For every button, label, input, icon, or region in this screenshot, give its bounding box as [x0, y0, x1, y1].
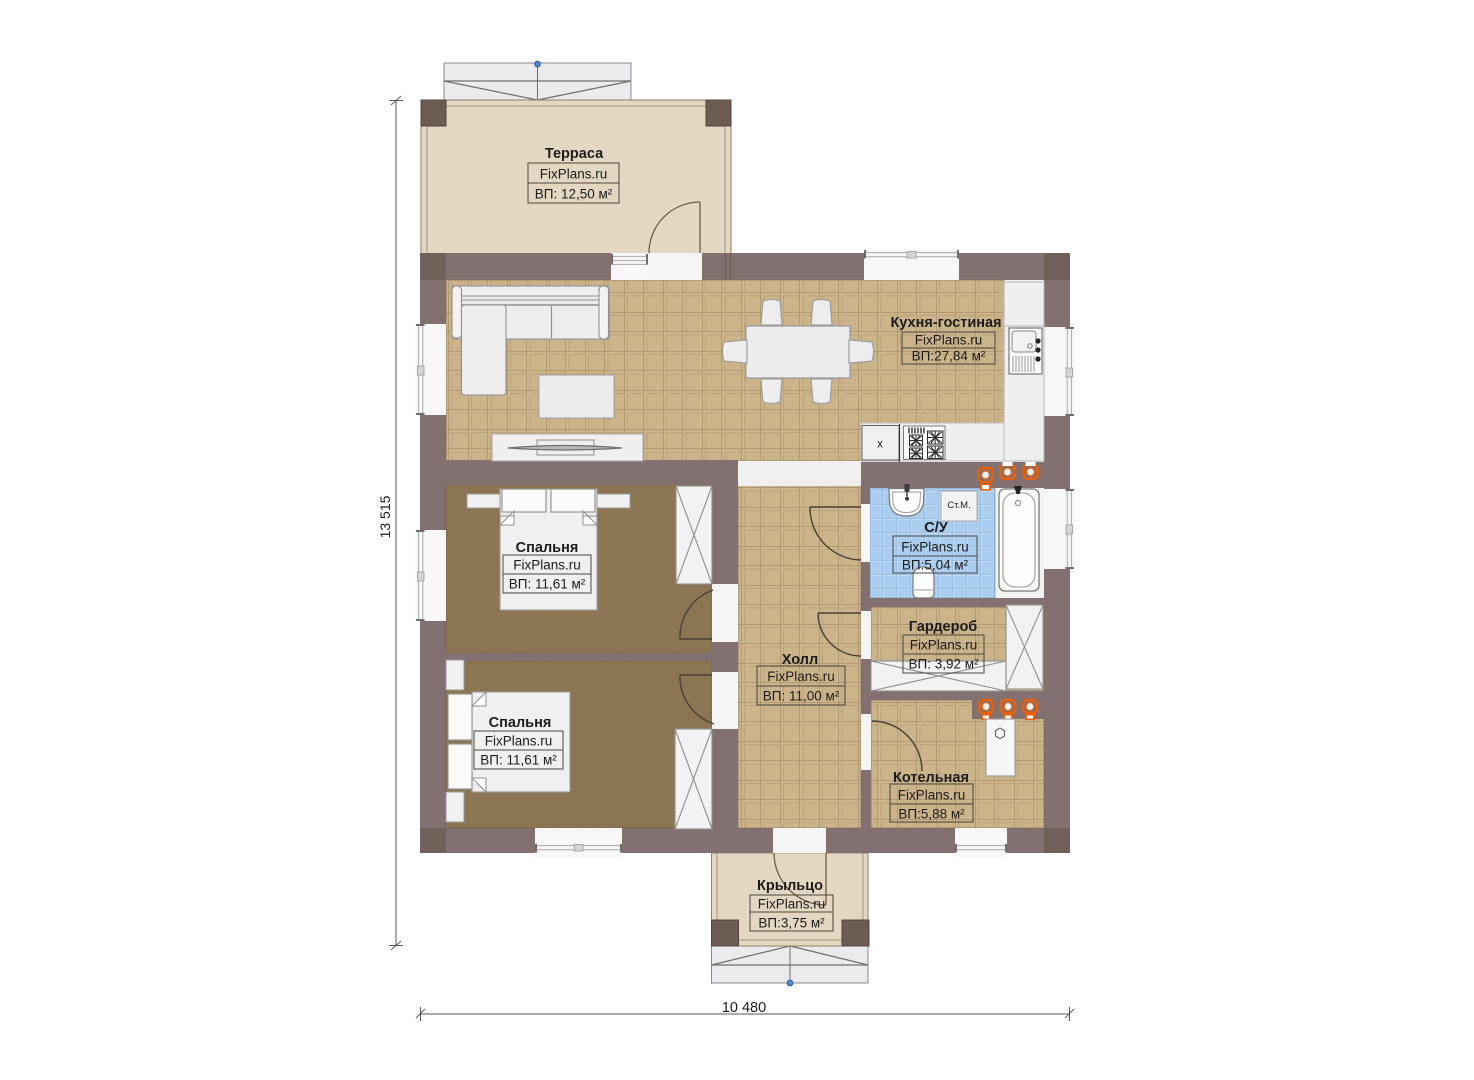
- svg-text:ВП: 11,61 м²: ВП: 11,61 м²: [509, 577, 586, 592]
- svg-text:x: x: [877, 439, 883, 451]
- svg-text:ВП: 3,92 м²: ВП: 3,92 м²: [908, 657, 979, 672]
- svg-text:ВП: 11,00 м²: ВП: 11,00 м²: [763, 689, 840, 704]
- svg-text:FixPlans.ru: FixPlans.ru: [758, 897, 826, 912]
- svg-text:13 515: 13 515: [377, 495, 393, 538]
- svg-text:ВП:5,88 м²: ВП:5,88 м²: [898, 807, 965, 822]
- svg-text:С/У: С/У: [924, 520, 949, 536]
- svg-text:Кухня-гостиная: Кухня-гостиная: [890, 315, 1001, 331]
- svg-text:Гардероб: Гардероб: [909, 619, 978, 635]
- svg-text:FixPlans.ru: FixPlans.ru: [513, 558, 581, 573]
- svg-text:FixPlans.ru: FixPlans.ru: [910, 638, 978, 653]
- svg-text:ВП:27,84 м²: ВП:27,84 м²: [912, 349, 986, 364]
- svg-text:Крыльцо: Крыльцо: [757, 878, 823, 894]
- svg-text:Терраса: Терраса: [545, 146, 604, 162]
- svg-text:10 480: 10 480: [722, 1000, 766, 1016]
- svg-text:FixPlans.ru: FixPlans.ru: [540, 167, 608, 182]
- svg-text:FixPlans.ru: FixPlans.ru: [485, 734, 553, 749]
- svg-text:Спальня: Спальня: [489, 715, 552, 731]
- svg-text:ВП: 12,50 м²: ВП: 12,50 м²: [535, 187, 613, 202]
- svg-text:FixPlans.ru: FixPlans.ru: [915, 333, 983, 348]
- svg-text:Спальня: Спальня: [516, 540, 579, 556]
- svg-text:ВП: 11,61 м²: ВП: 11,61 м²: [480, 753, 557, 768]
- svg-text:FixPlans.ru: FixPlans.ru: [898, 788, 966, 803]
- svg-text:FixPlans.ru: FixPlans.ru: [901, 540, 969, 555]
- svg-text:Ст.М.: Ст.М.: [947, 500, 970, 511]
- svg-text:FixPlans.ru: FixPlans.ru: [767, 669, 835, 684]
- svg-text:ВП:5,04 м²: ВП:5,04 м²: [902, 558, 969, 573]
- svg-text:ВП:3,75 м²: ВП:3,75 м²: [758, 916, 825, 931]
